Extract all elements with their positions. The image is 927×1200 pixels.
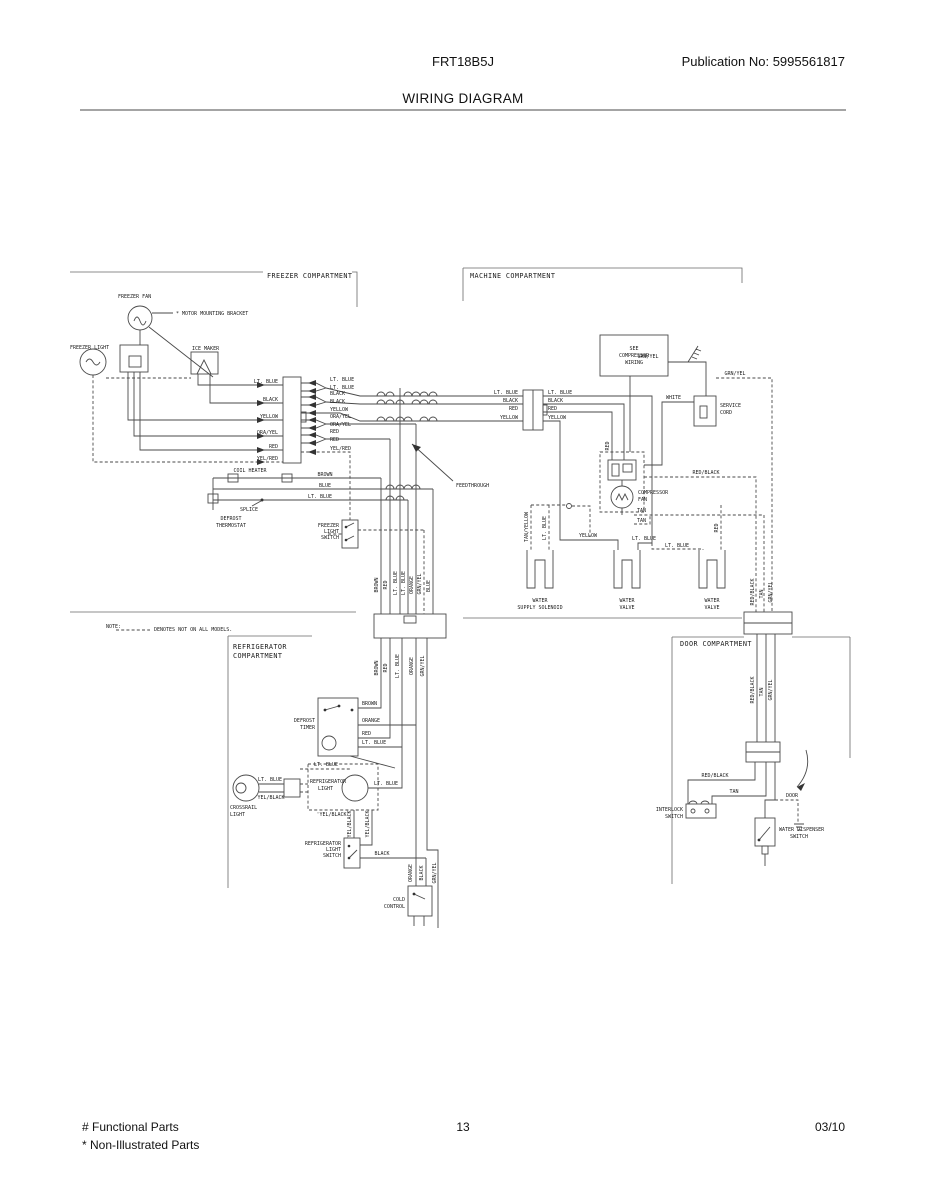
label-water-valve-2b: VALVE (704, 605, 719, 611)
wire-label: ORA/YEL (257, 430, 278, 436)
label-defrost-thermostat-1: DEFROST (220, 516, 241, 522)
label-crossrail-light-1: CROSSRAIL (230, 805, 257, 811)
label-see-compressor-wiring-3: WIRING (625, 360, 643, 366)
crimp-arrows (257, 380, 805, 791)
service-cord-symbol (694, 396, 716, 426)
wire-label: RED (362, 731, 371, 737)
wire-label-vertical: LT. BLUE (395, 654, 401, 678)
wire-label-vertical: BLACK (419, 865, 425, 880)
interlock-switch-symbol (686, 801, 716, 818)
wire-label: ORA/YEL (330, 422, 351, 428)
wire-label: 'YEL/BLACK' (316, 812, 349, 818)
wire-label: ORANGE (362, 718, 380, 724)
wire-label-vertical: TAN (759, 589, 765, 598)
section-refrigerator-compartment-line1: REFRIGERATOR (233, 643, 287, 651)
wire-label-vertical: BROWN (374, 577, 380, 592)
label-freezer-light-switch-3: SWITCH (321, 535, 339, 541)
wire-label-vertical: RED/BLACK (750, 578, 756, 605)
wire-label: BLACK (374, 851, 389, 857)
wire-label-vertical: GRN/YEL (417, 573, 423, 594)
compartment-borders (70, 268, 850, 888)
wire-label: RED (548, 406, 557, 412)
wire-label: BROWN (317, 472, 332, 478)
note-text: DENOTES NOT ON ALL MODELS. (154, 627, 232, 633)
freezer-light-symbol (80, 349, 106, 375)
wire-label-vertical: YEL/BLACK (347, 810, 353, 837)
wire-label-vertical: TAN/YELLOW (524, 511, 530, 542)
label-water-valve-1b: VALVE (619, 605, 634, 611)
wire-label-vertical: LT. BLUE (542, 516, 548, 540)
wire-label-vertical: YEL/BLACK (365, 810, 371, 837)
wire-label: BLACK (330, 399, 345, 405)
label-water-supply-solenoid-2: SUPPLY SOLENOID (517, 605, 562, 611)
wire-label-vertical: GRN/YEL (420, 655, 426, 676)
label-freezer-fan: FREEZER FAN (118, 294, 151, 300)
wire-label: LT. BLUE (665, 543, 689, 549)
wire-label-vertical: LT. BLUE (401, 571, 407, 595)
label-cold-control-1: COLD (393, 897, 405, 903)
water-dispenser-switch-symbol (755, 818, 775, 854)
note-label: NOTE: (106, 624, 121, 630)
wire-label: RED (509, 406, 518, 412)
label-water-supply-solenoid-1: WATER (532, 598, 548, 604)
label-service-cord-1: SERVICE (720, 403, 741, 409)
wire-label-vertical: GRN/YEL (768, 679, 774, 700)
footer-functional-parts: # Functional Parts (82, 1120, 179, 1134)
wire-crossover-bumps (377, 392, 437, 500)
wire-label: RED (269, 444, 278, 450)
wire-label: ORA/YEL (330, 414, 351, 420)
refrigerator-light-switch-symbol (344, 838, 360, 868)
footer-non-illustrated-parts: * Non-Illustrated Parts (82, 1138, 199, 1152)
wires-dashed (93, 375, 798, 824)
label-refrigerator-light-2: LIGHT (318, 786, 333, 792)
wire-label-vertical: GRN/YEL (768, 581, 774, 602)
label-door: DOOR (786, 793, 799, 799)
wire-label-vertical: RED (383, 663, 389, 672)
wire-label: BROWN (362, 701, 377, 707)
footer-date: 03/10 (815, 1120, 845, 1134)
wires-machine (527, 346, 725, 588)
label-defrost-thermostat-2: THERMOSTAT (216, 523, 246, 529)
wire-label-vertical: BROWN (374, 660, 380, 675)
wire-label-vertical: RED (714, 523, 720, 532)
compressor-fan-symbol (611, 486, 633, 508)
label-interlock-switch-2: SWITCH (665, 814, 683, 820)
freezer-light-switch-symbol (342, 520, 358, 548)
wire-label: RED (330, 429, 339, 435)
wire-label: YELLOW (579, 533, 598, 539)
defrost-timer-symbol (318, 698, 358, 756)
label-motor-mounting-bracket: * MOTOR MOUNTING BRACKET (176, 311, 248, 317)
diagram-title: WIRING DIAGRAM (402, 91, 523, 106)
wire-label: LT. BLUE (548, 390, 572, 396)
manual-page: FRT18B5J Publication No: 5995561817 WIRI… (0, 0, 927, 1200)
label-refrigerator-light-1: REFRIGERATOR (310, 779, 347, 785)
wire-label: YELLOW (330, 407, 349, 413)
label-interlock-switch-1: INTERLOCK (656, 807, 683, 813)
wire-label: RED/BLACK (692, 470, 719, 476)
wire-label: TAN (637, 508, 646, 514)
wire-label: YEL/RED (257, 456, 278, 462)
wire-label-vertical: BLUE (426, 580, 432, 592)
wire-label: BLACK (263, 397, 278, 403)
wire-label: YELLOW (548, 415, 567, 421)
wire-label: LT. BLUE (362, 740, 386, 746)
label-defrost-timer-2: TIMER (300, 725, 316, 731)
label-cold-control-2: CONTROL (384, 904, 405, 910)
page-title-model: FRT18B5J (432, 54, 494, 69)
wire-label: BLUE (319, 483, 331, 489)
wire-label: LT. BLUE (254, 379, 278, 385)
label-compressor-fan-1: COMPRESSOR (638, 490, 669, 496)
publication-number: Publication No: 5995561817 (682, 54, 845, 69)
wire-label-vertical: ORANGE (409, 657, 415, 675)
machine-harness-connector (523, 390, 547, 430)
wire-label: YELLOW (500, 415, 519, 421)
wire-label-vertical: LT. BLUE (393, 571, 399, 595)
section-freezer-compartment: FREEZER COMPARTMENT (267, 272, 352, 280)
cold-control-symbol (408, 886, 432, 916)
wire-label: BLACK (503, 398, 518, 404)
wire-label: RED (330, 437, 339, 443)
wire-label-vertical: RED/BLACK (750, 676, 756, 703)
label-freezer-light: FREEZER LIGHT (70, 345, 109, 351)
label-compressor-fan-2: FAN (638, 497, 647, 503)
wire-label: GRN/YEL (724, 371, 745, 377)
label-defrost-timer-1: DEFROST (294, 718, 315, 724)
wire-label-vertical: TAN (759, 687, 765, 696)
wire-label: RED/BLACK (701, 773, 728, 779)
wire-label: LT. BLUE (632, 536, 656, 542)
section-machine-compartment: MACHINE COMPARTMENT (470, 272, 555, 280)
wiring-diagram: FRT18B5J Publication No: 5995561817 WIRI… (0, 0, 927, 1200)
label-service-cord-2: CORD (720, 410, 732, 416)
label-coil-heater: COIL HEATER (233, 468, 267, 474)
wire-label: BLACK (548, 398, 563, 404)
label-water-valve-1a: WATER (619, 598, 635, 604)
wire-label-vertical: RED (605, 441, 611, 450)
label-crossrail-light-2: LIGHT (230, 812, 245, 818)
label-splice: SPLICE (240, 507, 258, 513)
section-refrigerator-compartment-line2: COMPARTMENT (233, 652, 282, 660)
evaporator-heater-box (120, 345, 148, 372)
label-water-dispenser-switch-2: SWITCH (790, 834, 808, 840)
wire-label: GRN/YEL (637, 354, 658, 360)
wire-label: LT. BLUE (258, 777, 282, 783)
wire-label: YEL/RED (330, 446, 351, 452)
refrigerator-harness-connector (374, 614, 446, 638)
label-ice-maker: ICE MAKER (192, 346, 220, 352)
section-door-compartment: DOOR COMPARTMENT (680, 640, 752, 648)
wire-label: YEL/BLACK (257, 795, 284, 801)
wire-label: LT. BLUE (314, 762, 338, 768)
label-water-dispenser-switch-1: WATER DISPENSER (779, 827, 825, 833)
wire-label-vertical: ORANGE (408, 864, 414, 882)
wire-label-vertical: ORANGE (409, 576, 415, 594)
splice-dot-machine (567, 504, 572, 509)
wire-label-vertical: RED (383, 580, 389, 589)
wires-refrigerator (259, 638, 438, 928)
wires-freezer (128, 313, 523, 614)
wire-label: WHITE (666, 395, 681, 401)
wire-label: LT. BLUE (330, 377, 354, 383)
label-water-valve-2a: WATER (704, 598, 720, 604)
wire-label: LT. BLUE (308, 494, 332, 500)
wire-label: TAN (637, 518, 646, 524)
wire-label: LT. BLUE (494, 390, 518, 396)
wire-label: LT. BLUE (374, 781, 398, 787)
label-refrigerator-light-switch-3: SWITCH (323, 853, 341, 859)
freezer-fan-symbol (128, 306, 152, 330)
wire-label: BLACK (330, 391, 345, 397)
wire-label: TAN (729, 789, 738, 795)
wire-label: YELLOW (260, 414, 279, 420)
wire-label-vertical: GRN/YEL (432, 862, 438, 883)
label-see-compressor-wiring-1: SEE (629, 346, 638, 352)
footer-page-number: 13 (456, 1120, 470, 1134)
label-feedthrough: FEEDTHROUGH (456, 483, 489, 489)
